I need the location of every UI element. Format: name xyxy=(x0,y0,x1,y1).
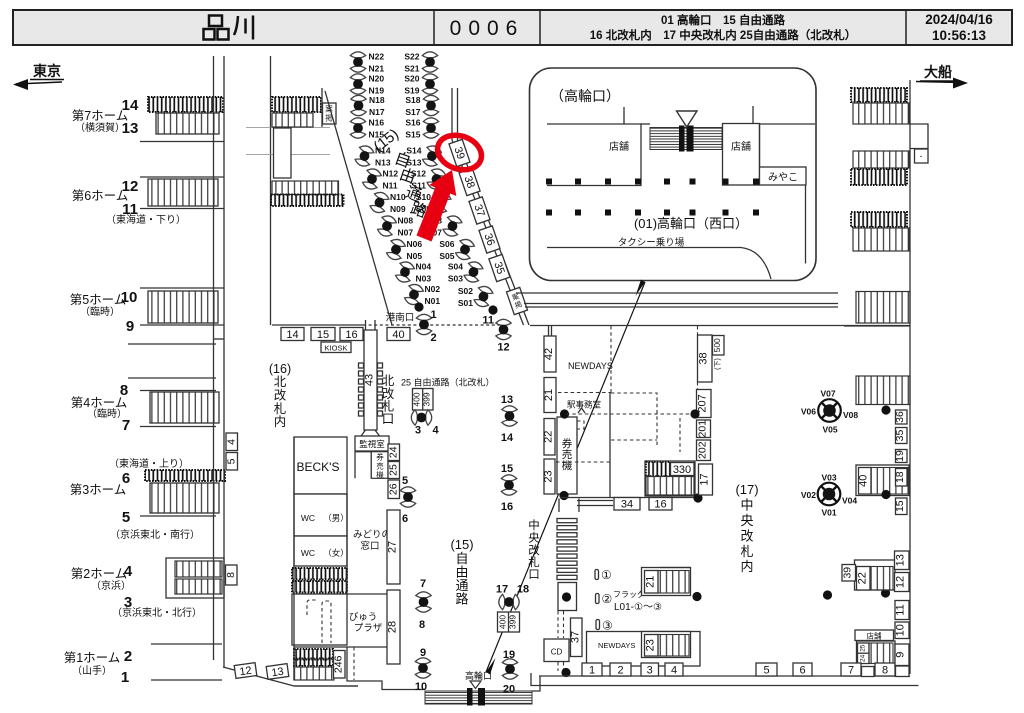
svg-text:13: 13 xyxy=(271,666,285,680)
svg-text:監視室: 監視室 xyxy=(359,439,385,449)
svg-text:2: 2 xyxy=(617,665,623,677)
svg-text:内: 内 xyxy=(740,559,753,574)
svg-text:第2ホーム: 第2ホーム xyxy=(71,567,128,581)
svg-text:NEWDAYS: NEWDAYS xyxy=(598,641,635,650)
svg-text:201: 201 xyxy=(697,420,709,438)
svg-text:S20: S20 xyxy=(404,74,419,84)
svg-text:N13: N13 xyxy=(375,158,391,168)
svg-text:8: 8 xyxy=(120,382,128,399)
svg-text:（東海道・上り）: （東海道・上り） xyxy=(109,457,189,470)
svg-text:-: - xyxy=(920,152,923,161)
svg-text:6: 6 xyxy=(122,470,130,487)
svg-text:12: 12 xyxy=(497,342,509,354)
svg-text:330: 330 xyxy=(673,464,691,476)
svg-text:②: ② xyxy=(602,592,613,606)
svg-text:（京浜）: （京浜） xyxy=(91,579,131,592)
svg-text:S01: S01 xyxy=(458,298,473,308)
svg-text:10:56:13: 10:56:13 xyxy=(932,28,987,43)
svg-text:改: 改 xyxy=(740,529,753,544)
svg-text:機: 機 xyxy=(376,470,384,480)
svg-text:39: 39 xyxy=(842,567,854,579)
svg-text:40: 40 xyxy=(392,329,404,341)
svg-text:N05: N05 xyxy=(407,251,423,261)
svg-text:4: 4 xyxy=(671,665,677,677)
svg-text:V07: V07 xyxy=(820,389,835,399)
svg-text:みどりの: みどりの xyxy=(353,530,391,541)
svg-text:機: 機 xyxy=(562,459,573,472)
svg-text:202: 202 xyxy=(697,441,709,459)
svg-text:16: 16 xyxy=(345,329,357,341)
svg-text:（山手）: （山手） xyxy=(72,664,112,677)
svg-text:タクシー乗り場: タクシー乗り場 xyxy=(618,237,685,249)
svg-text:S19: S19 xyxy=(404,86,419,96)
svg-text:7: 7 xyxy=(122,417,130,434)
svg-text:S22: S22 xyxy=(404,52,419,62)
svg-text:N21: N21 xyxy=(369,64,385,74)
svg-text:23: 23 xyxy=(645,639,657,651)
svg-text:25: 25 xyxy=(860,644,867,652)
svg-text:9: 9 xyxy=(895,652,907,658)
svg-text:N18: N18 xyxy=(369,95,385,105)
svg-text:S21: S21 xyxy=(404,64,419,74)
svg-text:12: 12 xyxy=(239,665,253,679)
svg-text:(15): (15) xyxy=(450,537,473,552)
svg-text:売: 売 xyxy=(376,461,384,471)
svg-text:22: 22 xyxy=(857,572,869,584)
svg-text:V03: V03 xyxy=(821,473,836,483)
svg-text:25 自由通路（北改札）: 25 自由通路（北改札） xyxy=(401,377,495,388)
svg-text:207: 207 xyxy=(697,394,709,412)
svg-text:15: 15 xyxy=(894,500,906,512)
svg-text:500: 500 xyxy=(712,338,722,352)
svg-text:18: 18 xyxy=(517,584,529,596)
svg-text:札: 札 xyxy=(274,402,287,416)
svg-text:（京浜東北・北行）: （京浜東北・北行） xyxy=(112,606,202,619)
svg-text:4: 4 xyxy=(124,563,133,580)
svg-text:10: 10 xyxy=(121,289,138,306)
svg-text:第4ホーム: 第4ホーム xyxy=(71,396,128,410)
svg-text:0006: 0006 xyxy=(450,17,525,40)
svg-text:24: 24 xyxy=(388,446,400,458)
svg-text:7: 7 xyxy=(848,665,854,677)
svg-text:34: 34 xyxy=(621,499,633,511)
svg-text:高輪口: 高輪口 xyxy=(465,670,492,681)
svg-text:路: 路 xyxy=(455,592,468,607)
svg-text:S15: S15 xyxy=(405,130,420,140)
svg-text:12: 12 xyxy=(895,576,907,588)
svg-text:札: 札 xyxy=(740,544,753,559)
svg-text:N07: N07 xyxy=(398,228,414,238)
svg-text:券: 券 xyxy=(376,452,384,462)
svg-text:改: 改 xyxy=(528,543,540,557)
svg-text:399: 399 xyxy=(422,392,432,406)
svg-text:N02: N02 xyxy=(425,284,441,294)
svg-text:びゅう: びゅう xyxy=(349,612,378,623)
svg-text:6: 6 xyxy=(402,513,408,525)
svg-text:N09: N09 xyxy=(390,204,406,214)
svg-text:改: 改 xyxy=(274,389,287,403)
svg-text:北: 北 xyxy=(274,375,287,389)
svg-text:①: ① xyxy=(601,568,612,582)
svg-text:（東海道・下り）: （東海道・下り） xyxy=(106,213,186,226)
svg-text:S03: S03 xyxy=(448,274,463,284)
svg-text:2024/04/16: 2024/04/16 xyxy=(925,12,993,27)
svg-text:第6ホーム: 第6ホーム xyxy=(72,189,129,203)
svg-text:18: 18 xyxy=(894,471,906,483)
svg-text:BECK'S: BECK'S xyxy=(297,460,340,474)
svg-text:N12: N12 xyxy=(383,169,399,179)
svg-text:プラザ: プラザ xyxy=(354,623,383,634)
svg-text:13: 13 xyxy=(501,394,513,406)
svg-text:23: 23 xyxy=(543,470,555,482)
svg-text:(01)高輪口（西口）: (01)高輪口（西口） xyxy=(634,216,748,231)
svg-text:1: 1 xyxy=(431,309,437,321)
svg-text:S16: S16 xyxy=(405,118,420,128)
svg-text:WC: WC xyxy=(301,548,315,558)
svg-text:NEWDAYS: NEWDAYS xyxy=(568,361,613,371)
svg-text:19: 19 xyxy=(894,450,906,462)
svg-text:V06: V06 xyxy=(801,407,816,417)
svg-text:6: 6 xyxy=(799,665,805,677)
svg-text:内: 内 xyxy=(274,415,287,429)
svg-text:N16: N16 xyxy=(369,118,385,128)
svg-text:5: 5 xyxy=(763,665,769,677)
svg-text:4: 4 xyxy=(226,439,238,445)
svg-text:口: 口 xyxy=(382,412,395,426)
svg-text:S04: S04 xyxy=(448,262,463,272)
svg-text:S02: S02 xyxy=(458,286,473,296)
svg-text:14: 14 xyxy=(122,97,139,114)
svg-text:16 北改札内 17 中央改札内 25自由通路（北改札）: 16 北改札内 17 中央改札内 25自由通路（北改札） xyxy=(590,28,856,42)
svg-text:38: 38 xyxy=(698,352,710,364)
svg-text:5: 5 xyxy=(122,509,130,526)
svg-text:24: 24 xyxy=(860,654,867,662)
svg-text:8: 8 xyxy=(882,665,888,677)
svg-text:21: 21 xyxy=(645,576,657,588)
svg-text:V04: V04 xyxy=(842,496,857,506)
svg-text:3: 3 xyxy=(647,665,653,677)
svg-text:8: 8 xyxy=(225,572,237,578)
svg-text:第7ホーム: 第7ホーム xyxy=(72,109,129,123)
svg-text:WC: WC xyxy=(301,513,315,523)
svg-text:N11: N11 xyxy=(383,181,398,191)
svg-text:01 高輪口 15 自由通路: 01 高輪口 15 自由通路 xyxy=(661,13,785,27)
svg-text:2: 2 xyxy=(124,648,132,665)
svg-text:16: 16 xyxy=(654,499,666,511)
svg-text:駅事務室: 駅事務室 xyxy=(567,400,602,410)
svg-text:4: 4 xyxy=(432,425,439,437)
svg-text:中: 中 xyxy=(740,498,753,513)
svg-text:246: 246 xyxy=(333,655,345,673)
svg-text:(16): (16) xyxy=(269,362,291,376)
svg-text:店舗: 店舗 xyxy=(731,140,751,153)
svg-text:42: 42 xyxy=(543,348,555,360)
svg-text:北: 北 xyxy=(382,374,395,388)
svg-text:みやこ: みやこ xyxy=(768,172,798,184)
svg-text:第3ホーム: 第3ホーム xyxy=(70,483,127,497)
svg-text:17: 17 xyxy=(699,473,711,485)
svg-text:11: 11 xyxy=(895,604,907,615)
svg-text:（高輪口）: （高輪口） xyxy=(550,88,620,104)
svg-text:19: 19 xyxy=(503,649,515,661)
svg-text:口: 口 xyxy=(528,569,540,581)
svg-text:N01: N01 xyxy=(425,296,441,306)
svg-text:中: 中 xyxy=(528,519,540,532)
svg-text:37: 37 xyxy=(570,631,582,643)
svg-text:40: 40 xyxy=(858,475,870,487)
svg-text:（男）: （男） xyxy=(323,513,349,523)
svg-text:28: 28 xyxy=(387,621,399,633)
svg-text:CD: CD xyxy=(551,648,563,657)
svg-text:店舗: 店舗 xyxy=(609,140,629,153)
svg-text:5: 5 xyxy=(402,475,408,487)
svg-text:16: 16 xyxy=(501,501,513,513)
svg-text:12: 12 xyxy=(122,178,139,195)
svg-text:14: 14 xyxy=(501,432,514,444)
svg-text:3: 3 xyxy=(415,425,421,437)
svg-text:5: 5 xyxy=(226,458,238,464)
svg-text:(下): (下) xyxy=(714,358,722,370)
svg-text:13: 13 xyxy=(122,120,139,137)
svg-text:（臨時）: （臨時） xyxy=(80,305,120,318)
svg-text:43: 43 xyxy=(364,374,376,386)
svg-text:14: 14 xyxy=(286,329,298,341)
svg-text:2: 2 xyxy=(431,332,437,344)
svg-text:N20: N20 xyxy=(369,74,385,84)
svg-text:8: 8 xyxy=(419,619,425,631)
svg-text:東京: 東京 xyxy=(33,63,61,79)
svg-text:(17): (17) xyxy=(735,482,758,497)
svg-text:15: 15 xyxy=(317,329,329,341)
svg-text:央: 央 xyxy=(740,513,753,528)
svg-text:N04: N04 xyxy=(416,262,432,272)
svg-text:N17: N17 xyxy=(369,107,385,117)
svg-text:S17: S17 xyxy=(405,107,420,117)
svg-text:S06: S06 xyxy=(439,239,454,249)
svg-text:1: 1 xyxy=(121,669,129,686)
svg-text:大船: 大船 xyxy=(924,64,952,80)
svg-text:25: 25 xyxy=(388,464,400,476)
svg-text:17: 17 xyxy=(496,584,508,596)
svg-text:V01: V01 xyxy=(821,508,836,518)
svg-text:399: 399 xyxy=(508,615,518,629)
svg-text:N03: N03 xyxy=(416,274,432,284)
svg-text:札: 札 xyxy=(528,556,540,569)
svg-text:22: 22 xyxy=(543,431,555,443)
svg-text:（横須賀）: （横須賀） xyxy=(75,121,125,134)
svg-text:フラッグ: フラッグ xyxy=(613,589,645,599)
svg-text:店舗: 店舗 xyxy=(867,631,882,641)
svg-text:13: 13 xyxy=(895,554,907,566)
svg-text:7: 7 xyxy=(420,578,426,590)
svg-text:11: 11 xyxy=(482,315,494,327)
svg-text:L01-①～③: L01-①～③ xyxy=(614,602,662,613)
svg-text:27: 27 xyxy=(387,541,399,553)
svg-text:9: 9 xyxy=(126,318,134,335)
svg-text:（京浜東北・南行）: （京浜東北・南行） xyxy=(110,528,200,541)
svg-text:V02: V02 xyxy=(801,490,816,500)
svg-text:V08: V08 xyxy=(843,410,858,420)
svg-text:KIOSK: KIOSK xyxy=(325,344,348,353)
svg-text:N19: N19 xyxy=(369,86,385,96)
svg-text:③: ③ xyxy=(602,619,613,633)
svg-text:26: 26 xyxy=(388,483,400,495)
svg-text:N06: N06 xyxy=(407,239,423,249)
svg-text:S18: S18 xyxy=(405,95,420,105)
svg-text:36: 36 xyxy=(894,411,906,423)
svg-text:1: 1 xyxy=(589,665,595,677)
svg-text:400: 400 xyxy=(412,392,422,406)
svg-text:港南口: 港南口 xyxy=(386,312,415,324)
svg-text:N22: N22 xyxy=(369,52,385,62)
svg-text:第5ホーム: 第5ホーム xyxy=(70,293,127,307)
svg-text:35: 35 xyxy=(894,430,906,442)
svg-text:（女）: （女） xyxy=(323,548,349,558)
svg-text:10: 10 xyxy=(895,624,907,636)
svg-text:15: 15 xyxy=(501,463,513,475)
svg-text:央: 央 xyxy=(528,532,540,545)
svg-text:S05: S05 xyxy=(439,251,454,261)
svg-text:V05: V05 xyxy=(822,425,837,435)
svg-text:窓口: 窓口 xyxy=(360,540,379,552)
svg-text:21: 21 xyxy=(543,389,555,401)
svg-text:9: 9 xyxy=(420,647,426,659)
svg-text:400: 400 xyxy=(498,615,508,629)
svg-text:第1ホーム: 第1ホーム xyxy=(64,651,121,665)
